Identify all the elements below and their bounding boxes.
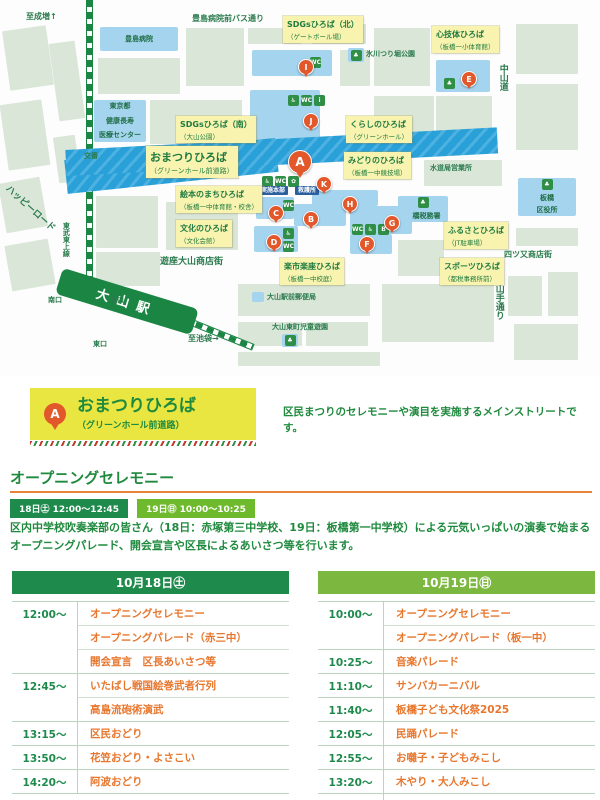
schedule-row: 11:40～板橋子ども文化祭2025 <box>318 697 595 721</box>
map-marker-g: G <box>384 215 400 231</box>
schedule-row: 14:20～阿波おどり <box>12 769 289 793</box>
schedule-items: 阿波おどり <box>78 770 289 793</box>
schedule-item: 民踊パレード <box>384 722 595 745</box>
area-label-subtitle: （板橋一中競技場） <box>348 167 407 177</box>
city-block <box>2 25 54 91</box>
map-marker-i: I <box>298 59 314 75</box>
area-label-subtitle: （大山公園） <box>180 131 252 141</box>
pin-letter: A <box>50 407 59 421</box>
schedule-row: 13:20～木やり・大人みこし <box>318 769 595 793</box>
schedule-items: 板橋子ども文化祭2025 <box>384 698 595 721</box>
schedule-row: 10:00～オープニングセレモニーオープニングパレード（板一中） <box>318 601 595 649</box>
facility-label: 豊島病院 <box>100 35 178 44</box>
area-label-title: おまつりひろば <box>150 149 234 165</box>
area-label: 絵本のまちひろば（板橋一中体育館・校舎） <box>176 186 262 213</box>
schedule-table-oct19: 10月19日㊐10:00～オープニングセレモニーオープニングパレード（板一中）1… <box>318 571 595 800</box>
map-marker-h: H <box>342 196 358 212</box>
festival-area-map: 大山駅 豊島病院東京都健康長寿医療センター♣板橋区役所♣板橋税務署♣♣WC♿WC… <box>0 0 600 376</box>
schedule-time: 16:00～ <box>318 794 384 800</box>
schedule-items: 木やり・大人みこし <box>384 770 595 793</box>
map-text: 四ツ又商店街 <box>504 250 552 260</box>
park-icon: ♣ <box>444 78 455 89</box>
facility-box: 豊島病院 <box>100 27 178 51</box>
map-text: 至成増↑ <box>26 12 57 22</box>
venue-zone: ♣ <box>348 48 364 62</box>
venue-zone <box>294 204 346 226</box>
schedule-time: 11:40～ <box>318 698 384 721</box>
schedule-items: 区長あいさつ <box>384 794 595 800</box>
schedule-items: お囃子・子どもみこし <box>384 746 595 769</box>
area-label-title: みどりのひろば <box>348 155 407 166</box>
map-text: 氷川つり堀公園 <box>366 50 415 58</box>
schedule-body: 12:00～オープニングセレモニーオープニングパレード（赤三中）開会宣言 区長あ… <box>12 601 289 794</box>
area-label-subtitle: （文化会館） <box>180 235 228 245</box>
schedule-item: 高島流砲術演武 <box>78 697 289 721</box>
park-icon: ♣ <box>418 197 429 208</box>
area-label: ふるさとひろば（JT駐車場） <box>444 222 508 249</box>
venue-card-text: おまつりひろば （グリーンホール前道路） <box>77 397 196 432</box>
area-label-subtitle: （グリーンホール） <box>350 131 408 141</box>
city-block <box>0 99 50 170</box>
schedule-time: 12:55～ <box>318 746 384 769</box>
area-label-subtitle: （グリーンホール前道路） <box>150 166 234 176</box>
schedule-items: 花笠おどり・よさこい <box>78 746 289 769</box>
map-text: 交番 <box>84 152 98 160</box>
schedule-date-header: 10月19日㊐ <box>318 571 595 594</box>
area-label: 心技体ひろば（板橋一小体育館） <box>432 26 499 53</box>
schedule-item: サンバカーニバル <box>384 674 595 697</box>
map-text: 東武東上線 <box>62 222 70 257</box>
area-label-title: 文化のひろば <box>180 223 228 234</box>
area-label-title: SDGsひろば（北） <box>287 19 359 30</box>
area-label-subtitle: （板橋一中校庭） <box>284 273 340 283</box>
map-text: 大山東町児童遊園 <box>272 323 328 331</box>
hq-badge: 救護所 <box>295 186 319 195</box>
schedule-item: 音楽パレード <box>384 650 595 673</box>
area-label: スポーツひろば（都税事務所前） <box>440 258 504 285</box>
area-label: 文化のひろば（文化会館） <box>176 220 232 247</box>
date-time-badges: 18日㊏ 12:00～12:45 19日㊐ 10:00～10:25 <box>10 499 255 518</box>
map-text: 豊島病院前バス通り <box>192 14 264 24</box>
area-label: みどりのひろば（板橋一中競技場） <box>344 152 411 179</box>
venue-subtitle: （グリーンホール前道路） <box>77 418 196 431</box>
city-block <box>96 196 158 248</box>
venue-title: おまつりひろば <box>77 397 196 417</box>
area-label: おまつりひろば（グリーンホール前道路） <box>146 146 238 178</box>
facility-label: 健康長寿 <box>94 117 146 126</box>
info-icon: i <box>314 95 325 106</box>
city-block <box>238 352 380 366</box>
area-label-title: 絵本のまちひろば <box>180 189 258 200</box>
schedule-item: 花笠おどり・よさこい <box>78 746 289 769</box>
schedule-time: 11:10～ <box>318 674 384 697</box>
schedule-item: オープニングセレモニー <box>384 602 595 625</box>
schedule-items: 民踊パレード <box>384 722 595 745</box>
venue-card-a: A おまつりひろば （グリーンホール前道路） <box>30 388 256 440</box>
map-text: 北口 <box>110 296 124 304</box>
festival-guide-page: 大山駅 豊島病院東京都健康長寿医療センター♣板橋区役所♣板橋税務署♣♣WC♿WC… <box>0 0 600 800</box>
schedule-item: 板橋子ども文化祭2025 <box>384 698 595 721</box>
area-label: 楽市楽座ひろば（板橋一中校庭） <box>280 258 344 285</box>
restroom-icon: WC <box>301 95 312 106</box>
city-block <box>516 228 578 246</box>
area-label-subtitle: （都税事務所前） <box>444 273 500 283</box>
city-block <box>516 24 578 74</box>
area-label: SDGsひろば（南）（大山公園） <box>176 116 256 143</box>
restroom-icon: WC <box>283 241 294 252</box>
wheelchair-icon: ♿ <box>288 95 299 106</box>
schedule-date-header: 10月18日㊏ <box>12 571 289 594</box>
schedule-row: 10:25～音楽パレード <box>318 649 595 673</box>
schedule-row: 13:50～花笠おどり・よさこい <box>12 745 289 769</box>
decorative-stitch-border <box>30 441 256 446</box>
badge-oct18: 18日㊏ 12:00～12:45 <box>10 499 128 518</box>
schedule-item: 区民おどり <box>78 722 289 745</box>
schedule-item: オープニングセレモニー <box>78 602 289 625</box>
schedule-row: 11:10～サンバカーニバル <box>318 673 595 697</box>
facility-box: ♣板橋区役所 <box>518 178 576 216</box>
map-marker-e: E <box>461 71 477 87</box>
restroom-icon: WC <box>283 200 294 211</box>
area-label-subtitle: （板橋一中体育館・校舎） <box>180 201 258 211</box>
schedule-time: 14:20～ <box>12 770 78 793</box>
area-label-title: 心技体ひろば <box>436 29 495 40</box>
section-heading: オープニングセレモニー <box>10 467 174 488</box>
venue-description: 区民まつりのセレモニーや演目を実施するメインストリートです。 <box>283 404 595 437</box>
schedule-time: 13:20～ <box>318 770 384 793</box>
schedule-items: 音楽パレード <box>384 650 595 673</box>
schedule-item: 開会宣言 区長あいさつ等 <box>78 649 289 673</box>
map-text: 水道局営業所 <box>430 164 472 172</box>
badge-oct19: 19日㊐ 10:00～10:25 <box>137 499 255 518</box>
schedule-time: 10:25～ <box>318 650 384 673</box>
map-text: 大山駅前郵便局 <box>267 293 316 301</box>
schedule-time: 12:45～ <box>12 674 78 721</box>
schedule-row: 12:05～民踊パレード <box>318 721 595 745</box>
schedule-row: 12:00～オープニングセレモニーオープニングパレード（赤三中）開会宣言 区長あ… <box>12 601 289 673</box>
city-block <box>514 324 578 360</box>
schedule-time: 13:50～ <box>12 746 78 769</box>
schedule-time: 12:00～ <box>12 602 78 673</box>
map-marker-f: F <box>359 236 375 252</box>
schedule-items: いたばし戦国絵巻武者行列高島流砲術演武 <box>78 674 289 721</box>
area-label: くらしのひろば（グリーンホール） <box>346 116 412 143</box>
schedule-items: サンバカーニバル <box>384 674 595 697</box>
facility-label: 区役所 <box>518 206 576 215</box>
city-block <box>98 58 180 94</box>
schedule-table-oct18: 10月18日㊏12:00～オープニングセレモニーオープニングパレード（赤三中）開… <box>12 571 289 794</box>
map-text: 中山道 <box>497 64 508 91</box>
schedule-row: 12:45～いたばし戦国絵巻武者行列高島流砲術演武 <box>12 673 289 721</box>
area-label-subtitle: （板橋一小体育館） <box>436 41 495 51</box>
facility-label: 板橋 <box>518 194 576 203</box>
schedule-item: 木やり・大人みこし <box>384 770 595 793</box>
schedule-time: 13:15～ <box>12 722 78 745</box>
wheelchair-icon: ♿ <box>283 228 294 239</box>
area-label-subtitle: （JT駐車場） <box>448 237 504 247</box>
city-block <box>4 239 55 292</box>
schedule-item: お囃子・子どもみこし <box>384 746 595 769</box>
city-block <box>508 276 542 316</box>
restroom-icon: WC <box>352 224 363 235</box>
facility-label: 医療センター <box>94 131 146 140</box>
facility-box: 東京都健康長寿医療センター <box>94 100 146 142</box>
schedule-items: 区民おどり <box>78 722 289 745</box>
venue-zone <box>252 292 264 302</box>
schedule-item: 区長あいさつ <box>384 794 595 800</box>
schedule-time: 12:05～ <box>318 722 384 745</box>
heading-underline <box>10 491 592 493</box>
map-text: 山手通り <box>493 284 504 320</box>
schedule-item: いたばし戦国絵巻武者行列 <box>78 674 289 697</box>
map-marker-d: D <box>266 234 282 250</box>
map-marker-j: J <box>303 113 319 129</box>
schedule-row: 13:15～区民おどり <box>12 721 289 745</box>
wheelchair-icon: ♿ <box>365 224 376 235</box>
map-text: 遊座大山商店街 <box>160 257 223 268</box>
map-marker-k: K <box>316 176 332 192</box>
park-icon: ♣ <box>542 179 553 190</box>
venue-zone: ♣ <box>282 334 298 347</box>
area-label-title: スポーツひろば <box>444 261 500 272</box>
area-label-title: くらしのひろば <box>350 119 408 130</box>
map-marker-a: A <box>288 150 312 174</box>
facility-label: 東京都 <box>94 102 146 111</box>
map-pin-a-icon: A <box>44 403 66 425</box>
city-block <box>49 41 86 122</box>
schedule-items: オープニングセレモニーオープニングパレード（板一中） <box>384 602 595 649</box>
schedule-time: 10:00～ <box>318 602 384 649</box>
park-icon: ♣ <box>351 50 362 61</box>
park-icon: ♣ <box>285 335 296 346</box>
schedule-item: オープニングパレード（板一中） <box>384 625 595 649</box>
city-block <box>548 272 578 316</box>
schedule-row: 12:55～お囃子・子どもみこし <box>318 745 595 769</box>
map-text: 東口 <box>93 340 107 348</box>
schedule-row: 16:00～区長あいさつ <box>318 793 595 800</box>
area-label-subtitle: （ゲートボール場） <box>287 31 359 41</box>
city-block <box>516 84 578 150</box>
map-text: 南口 <box>48 296 62 304</box>
schedule-item: 阿波おどり <box>78 770 289 793</box>
hq-badge: 実施本部 <box>258 186 288 195</box>
area-label-title: 楽市楽座ひろば <box>284 261 340 272</box>
area-label-title: ふるさとひろば <box>448 225 504 236</box>
schedule-items: オープニングセレモニーオープニングパレード（赤三中）開会宣言 区長あいさつ等 <box>78 602 289 673</box>
map-marker-c: C <box>268 205 284 221</box>
opening-description: 区内中学校吹奏楽部の皆さん（18日：赤塚第三中学校、19日：板橋第一中学校）によ… <box>10 519 592 555</box>
area-label-title: SDGsひろば（南） <box>180 119 252 130</box>
area-label: SDGsひろば（北）（ゲートボール場） <box>283 16 363 43</box>
city-block <box>186 28 244 86</box>
map-text: 至池袋→ <box>188 334 219 344</box>
schedule-item: オープニングパレード（赤三中） <box>78 625 289 649</box>
city-block <box>382 284 494 342</box>
station-name: 大山駅 <box>94 283 160 320</box>
map-marker-b: B <box>303 211 319 227</box>
city-block <box>398 240 444 276</box>
schedule-body: 10:00～オープニングセレモニーオープニングパレード（板一中）10:25～音楽… <box>318 601 595 800</box>
